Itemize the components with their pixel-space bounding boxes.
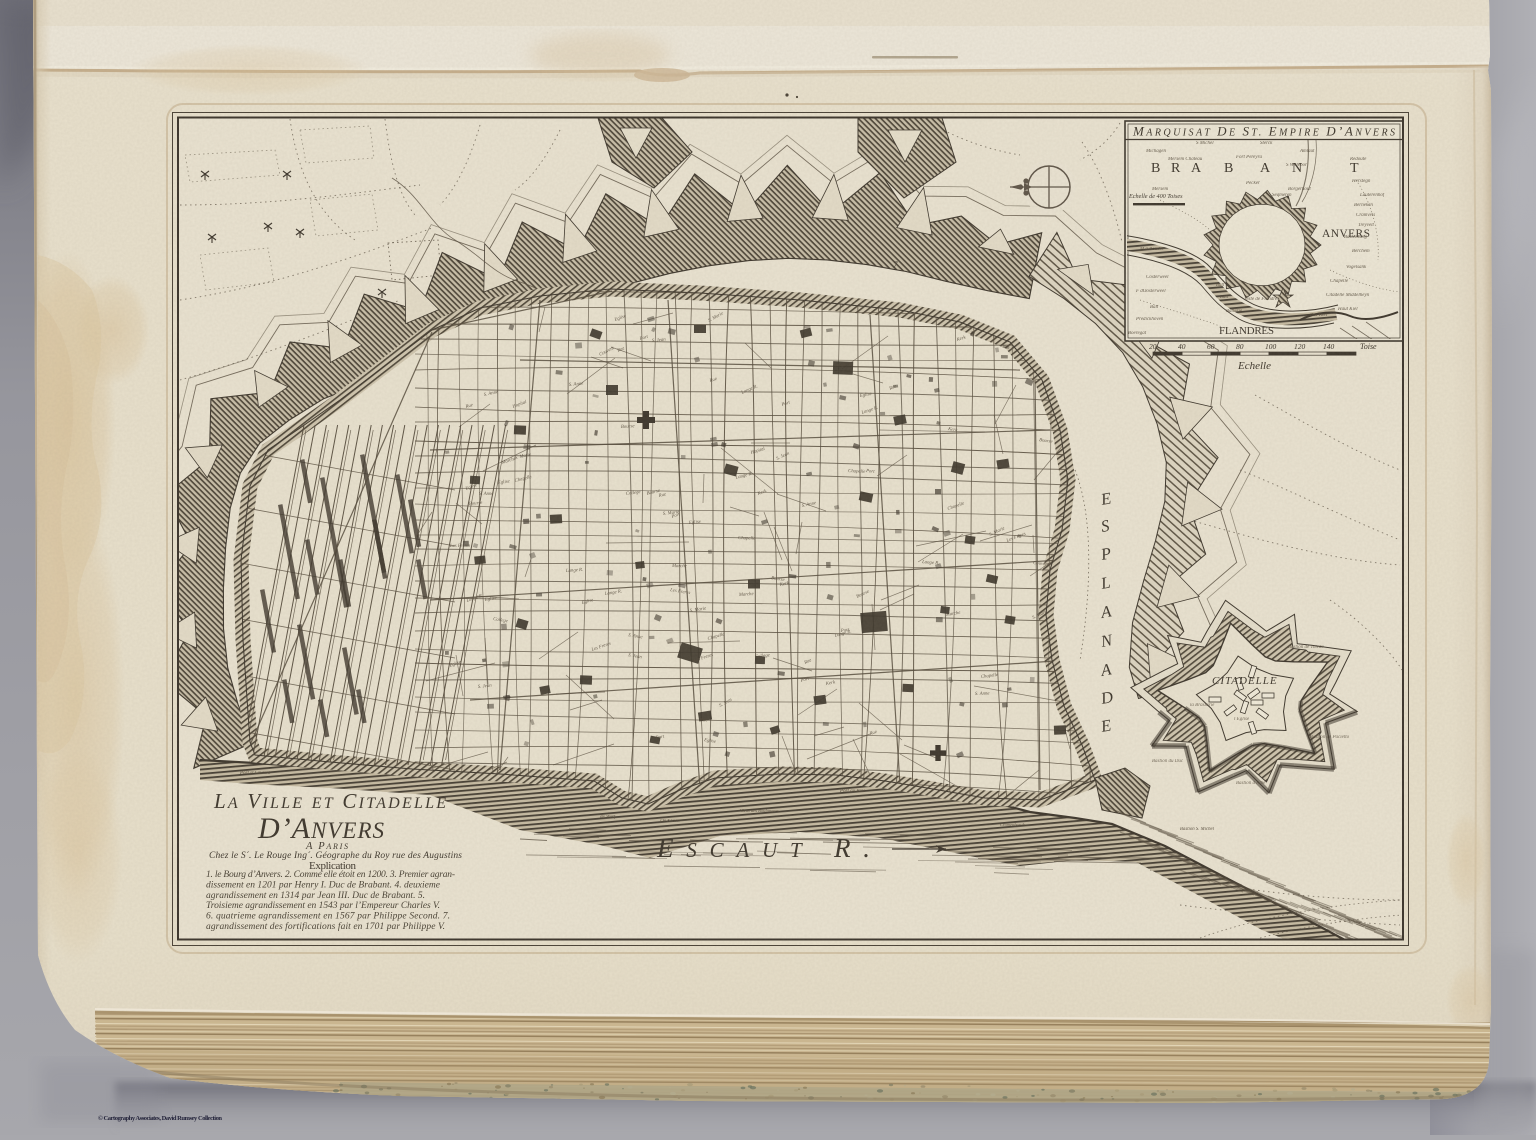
svg-text:© Cartography Associates, Davi: © Cartography Associates, David Rumsey C… xyxy=(98,1115,222,1122)
